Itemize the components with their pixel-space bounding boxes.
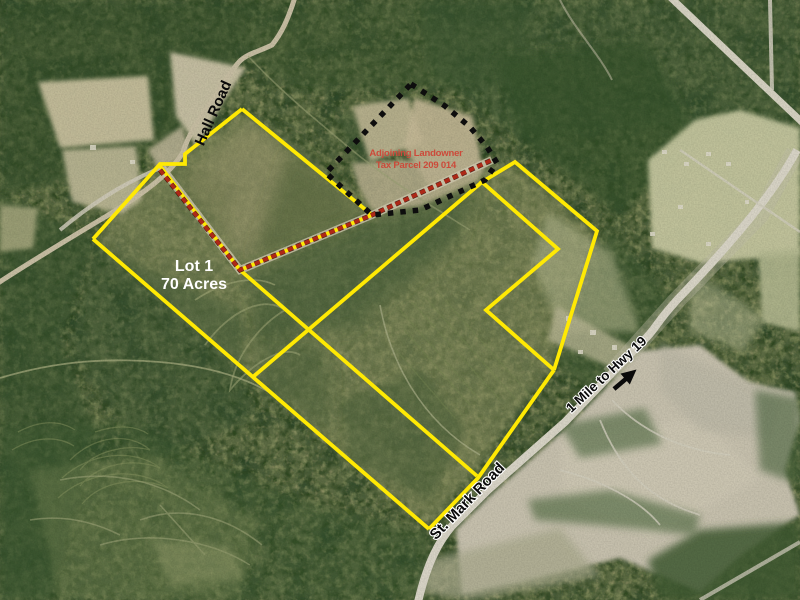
svg-text:Lot 1: Lot 1 <box>175 258 213 275</box>
svg-text:70 Acres: 70 Acres <box>161 276 227 293</box>
svg-text:Adjoining Landowner: Adjoining Landowner <box>369 148 463 159</box>
svg-text:Tax Parcel 209 014: Tax Parcel 209 014 <box>376 160 457 171</box>
